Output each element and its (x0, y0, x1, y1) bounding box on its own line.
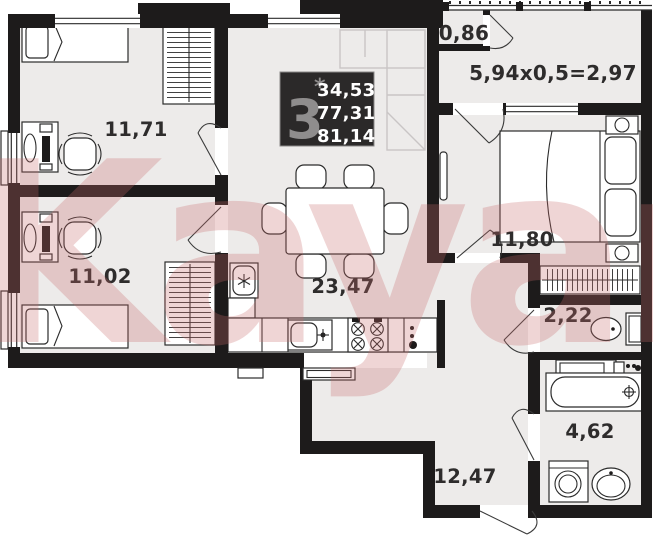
badge-area-living: 34,53 (317, 80, 375, 101)
room-label-toilet: 2,22 (543, 304, 592, 327)
room-label-bathroom: 4,62 (565, 420, 614, 443)
floorplan-canvas: 3 * 34,53 77,31 81,14 11,71 11,02 23,47 … (0, 0, 653, 537)
room-label-bedroom-bottom-left: 11,02 (68, 265, 131, 288)
washbasin-icon (592, 468, 630, 500)
desk-icon (22, 212, 58, 262)
fridge-icon (228, 263, 258, 318)
kitchen-sink-icon (288, 320, 332, 350)
badge-area-total: 81,14 (317, 126, 375, 147)
bathtub-icon (546, 373, 645, 411)
wardrobe-icon (163, 24, 215, 104)
washing-machine-icon (549, 461, 588, 502)
desk-icon (22, 122, 58, 172)
window (268, 14, 340, 28)
window (55, 14, 140, 28)
stove-icon (348, 318, 388, 352)
wardrobe-icon (540, 266, 640, 294)
window (1, 291, 20, 349)
window (1, 131, 20, 185)
hall-shelf-icon (238, 368, 355, 380)
balcony-formula-label: 5,94x0,5=2,97 (469, 61, 637, 85)
nightstand-icon (606, 244, 638, 262)
room-label-bedroom-right: 11,80 (490, 228, 553, 251)
window (506, 103, 578, 115)
tv-panel-icon (440, 152, 447, 200)
nightstand-icon (606, 116, 638, 134)
single-bed-icon (22, 305, 128, 348)
floorplan-drawing: 3 * 34,53 77,31 81,14 11,71 11,02 23,47 … (0, 0, 653, 537)
wardrobe-icon (165, 262, 215, 345)
info-badge: 3 * 34,53 77,31 81,14 (280, 72, 375, 151)
room-label-kitchen-living: 23,47 (311, 275, 374, 298)
room-label-balcony-closet: 0,86 (439, 21, 490, 45)
badge-area-apartment: 77,31 (317, 103, 375, 124)
room-label-hallway: 12,47 (433, 465, 496, 488)
double-bed-icon (500, 131, 640, 242)
balcony-railing (443, 2, 652, 11)
room-label-bedroom-top-left: 11,71 (104, 118, 167, 141)
